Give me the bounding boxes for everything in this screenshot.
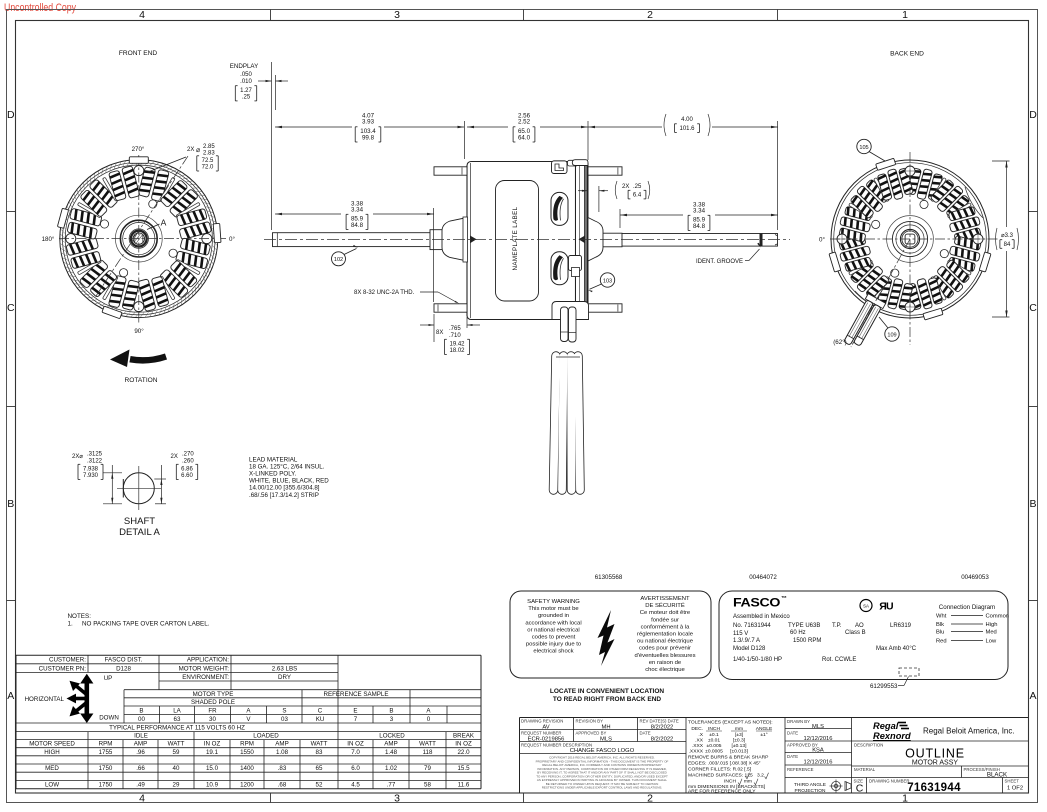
svg-text:270°: 270°	[132, 146, 145, 153]
svg-text:0°: 0°	[229, 236, 235, 243]
svg-text:[±3]: [±3]	[735, 732, 744, 738]
svg-text:grounded in: grounded in	[538, 613, 569, 619]
svg-text:40: 40	[173, 765, 180, 772]
svg-text:SHADED POLE: SHADED POLE	[191, 699, 235, 706]
svg-text:00469053: 00469053	[961, 574, 989, 581]
svg-text:THIRD ANGLE: THIRD ANGLE	[794, 782, 826, 788]
svg-text:Rexnord: Rexnord	[873, 731, 911, 741]
svg-text:1: 1	[902, 9, 908, 21]
svg-text:BREAK: BREAK	[453, 733, 475, 740]
svg-text:±0.005: ±0.005	[707, 743, 722, 749]
svg-text:11.6: 11.6	[458, 782, 470, 789]
svg-text:71631944: 71631944	[907, 782, 961, 794]
svg-text:⌀3.3: ⌀3.3	[1001, 233, 1014, 239]
svg-text:EDGES: .003/.015 [.08/.38] X: EDGES: .003/.015 [.08/.38] X 45°	[688, 761, 761, 767]
svg-text:7.938: 7.938	[83, 467, 99, 473]
svg-text:NAMEPLATE LABEL: NAMEPLATE LABEL	[512, 206, 519, 270]
svg-text:MOTOR SPEED: MOTOR SPEED	[29, 741, 75, 748]
svg-text:IDENT. GROOVE: IDENT. GROOVE	[696, 259, 743, 265]
svg-text:NO PACKING TAPE OVER CARTON LA: NO PACKING TAPE OVER CARTON LABEL.	[82, 621, 210, 628]
svg-text:CUSTOMER:: CUSTOMER:	[49, 657, 86, 664]
svg-text:AMP: AMP	[275, 741, 288, 748]
svg-text:03: 03	[281, 716, 288, 723]
svg-text:.270: .270	[182, 452, 194, 458]
svg-text:12/12/2016: 12/12/2016	[803, 760, 832, 766]
svg-text:S: S	[282, 707, 286, 714]
svg-text:2X: 2X	[171, 454, 178, 460]
svg-text:REFERENCE: REFERENCE	[787, 767, 814, 772]
svg-text:1.48: 1.48	[385, 749, 398, 756]
svg-text:SAFETY WARNING: SAFETY WARNING	[527, 599, 580, 605]
svg-text:109: 109	[887, 333, 896, 339]
svg-text:8X 8-32 UNC-2A THD.: 8X 8-32 UNC-2A THD.	[354, 290, 415, 296]
svg-text:MLS: MLS	[600, 737, 612, 743]
svg-text:6.60: 6.60	[181, 473, 193, 479]
svg-text:52: 52	[316, 782, 323, 789]
svg-text:.X: .X	[698, 732, 703, 738]
svg-text:D128: D128	[116, 665, 131, 672]
svg-text:SA: SA	[863, 604, 869, 609]
svg-text:.68/.56 [17.3/14.2] STRIP: .68/.56 [17.3/14.2] STRIP	[249, 492, 319, 499]
svg-text:choc électrique: choc électrique	[645, 667, 685, 673]
svg-text:WATT: WATT	[311, 741, 328, 748]
svg-text:±0.0005: ±0.0005	[705, 749, 723, 755]
svg-text:4: 4	[139, 9, 145, 21]
svg-text:A: A	[7, 690, 14, 702]
svg-text:61299553: 61299553	[870, 683, 898, 690]
svg-text:X-LINKED POLY.: X-LINKED POLY.	[249, 471, 297, 478]
svg-text:D: D	[7, 109, 15, 121]
svg-text:.66: .66	[136, 765, 145, 772]
svg-text:2X⌀: 2X⌀	[72, 454, 83, 460]
svg-text:84: 84	[1004, 242, 1011, 248]
svg-text:.XX: .XX	[695, 738, 704, 744]
svg-text:TYPICAL PERFORMANCE AT 115 VOL: TYPICAL PERFORMANCE AT 115 VOLTS 60 HZ	[109, 724, 245, 731]
svg-text:3: 3	[394, 9, 400, 21]
svg-text:codes pour prévenir: codes pour prévenir	[639, 646, 691, 652]
svg-text:90°: 90°	[134, 328, 144, 335]
svg-text:1750: 1750	[99, 782, 113, 789]
svg-text:1550: 1550	[240, 749, 254, 756]
svg-text:REQUEST NUMBER DESCRIPTION: REQUEST NUMBER DESCRIPTION	[521, 743, 592, 748]
svg-text:1: 1	[902, 793, 908, 805]
svg-text:Class B: Class B	[845, 630, 866, 636]
svg-text:6.0: 6.0	[351, 765, 360, 772]
svg-text:AVERTISSEMENT: AVERTISSEMENT	[640, 596, 690, 602]
svg-text:E: E	[353, 707, 357, 714]
svg-text:AO: AO	[855, 623, 864, 629]
svg-text:C: C	[7, 302, 15, 314]
svg-text:[±0.013]: [±0.013]	[730, 749, 748, 755]
svg-text:63: 63	[174, 716, 181, 723]
svg-text:Max Amb 40°C: Max Amb 40°C	[876, 646, 917, 652]
svg-text:REV DATE(S) DATE: REV DATE(S) DATE	[640, 719, 679, 724]
svg-text:1.3/.9/.7 A: 1.3/.9/.7 A	[733, 638, 760, 644]
svg-text:Regal Beloit America, Inc.: Regal Beloit America, Inc.	[923, 727, 1015, 736]
svg-text:.710: .710	[449, 333, 461, 339]
svg-text:3: 3	[394, 793, 400, 805]
svg-text:electrical shock: electrical shock	[533, 649, 573, 655]
svg-text:codes to prevent: codes to prevent	[532, 635, 576, 641]
svg-text:15.0: 15.0	[206, 765, 219, 772]
svg-text:Ce moteur doit être: Ce moteur doit être	[640, 610, 691, 616]
svg-text:180°: 180°	[42, 236, 55, 243]
svg-text:00464072: 00464072	[749, 574, 777, 581]
svg-text:TYPE U63B: TYPE U63B	[788, 623, 820, 629]
svg-text:LOW: LOW	[45, 782, 59, 789]
svg-text:.49: .49	[136, 782, 145, 789]
svg-text:MOTOR WEIGHT:: MOTOR WEIGHT:	[179, 665, 230, 672]
svg-text:0°: 0°	[819, 237, 825, 244]
svg-text:LA: LA	[173, 707, 181, 714]
svg-text:ARE FOR REFERENCE ONLY: ARE FOR REFERENCE ONLY	[688, 789, 756, 795]
svg-text:Connection Diagram: Connection Diagram	[939, 604, 995, 611]
svg-text:115 V: 115 V	[733, 631, 748, 637]
svg-text:DESCRIPTION: DESCRIPTION	[854, 743, 883, 748]
svg-text:1.02: 1.02	[385, 765, 398, 772]
svg-text:±1°: ±1°	[760, 732, 767, 738]
svg-text:CUSTOMER PN:: CUSTOMER PN:	[39, 665, 87, 672]
svg-text:1.: 1.	[68, 621, 74, 628]
svg-text:⌀: ⌀	[196, 147, 200, 154]
svg-text:B: B	[7, 498, 14, 510]
svg-text:Red: Red	[936, 639, 947, 645]
svg-text:FASCO DIST.: FASCO DIST.	[105, 657, 143, 664]
svg-text:WATT: WATT	[419, 741, 436, 748]
svg-text:3: 3	[390, 716, 394, 723]
svg-text:TOLERANCES (EXCEPT AS NOTED):: TOLERANCES (EXCEPT AS NOTED):	[688, 720, 773, 726]
svg-text:14.00/12.00 [355.6/304.8]: 14.00/12.00 [355.6/304.8]	[249, 485, 320, 492]
svg-text:REVISION BY: REVISION BY	[576, 719, 604, 724]
svg-text:99.8: 99.8	[362, 135, 375, 142]
svg-text:1.27: 1.27	[240, 88, 252, 94]
svg-text:BACK END: BACK END	[890, 51, 924, 58]
svg-text:8/2/2022: 8/2/2022	[651, 725, 674, 731]
svg-text:Regal: Regal	[873, 721, 899, 731]
svg-text:7: 7	[354, 716, 358, 723]
svg-text:64.0: 64.0	[518, 135, 531, 142]
svg-text:19.1: 19.1	[206, 749, 219, 756]
svg-text:No. 71631944: No. 71631944	[733, 623, 771, 629]
svg-text:6.86: 6.86	[181, 467, 193, 473]
svg-text:1500 RPM: 1500 RPM	[793, 638, 821, 644]
svg-text:1200: 1200	[240, 782, 254, 789]
svg-text:IN OZ: IN OZ	[455, 741, 472, 748]
svg-text:DETAIL A: DETAIL A	[119, 527, 160, 538]
svg-text:ROTATION: ROTATION	[124, 377, 157, 384]
svg-text:Blk: Blk	[936, 622, 944, 628]
svg-text:101.6: 101.6	[679, 126, 695, 132]
svg-text:72.0: 72.0	[202, 165, 214, 171]
svg-text:84.8: 84.8	[693, 223, 706, 230]
svg-text:B: B	[1029, 498, 1036, 510]
svg-text:CHANGE FASCO LOGO: CHANGE FASCO LOGO	[570, 748, 635, 754]
svg-text:Assembled in Mexico: Assembled in Mexico	[733, 614, 790, 620]
svg-text:AMP: AMP	[134, 741, 147, 748]
svg-text:BLACK: BLACK	[987, 772, 1008, 779]
svg-text:61305568: 61305568	[595, 574, 623, 581]
svg-text:3.2: 3.2	[757, 773, 764, 779]
svg-text:.3122: .3122	[87, 459, 103, 465]
svg-text:ENDPLAY: ENDPLAY	[230, 63, 258, 70]
svg-text:FRONT END: FRONT END	[119, 50, 158, 57]
svg-text:possible injury due to: possible injury due to	[526, 642, 582, 648]
svg-text:D: D	[1029, 109, 1037, 121]
svg-text:MLS: MLS	[812, 724, 824, 730]
svg-text:C: C	[318, 707, 323, 714]
svg-text:INCH: INCH	[724, 779, 736, 785]
svg-text:mm: mm	[744, 780, 752, 785]
svg-text:3.34: 3.34	[351, 207, 364, 214]
svg-text:84.8: 84.8	[351, 222, 364, 229]
svg-text:T.P.: T.P.	[832, 623, 842, 629]
svg-text:High: High	[986, 622, 998, 628]
svg-text:2.85: 2.85	[203, 144, 215, 150]
svg-text:Low: Low	[986, 639, 997, 645]
svg-text:AMP: AMP	[384, 741, 397, 748]
svg-text:This motor must be: This motor must be	[528, 606, 579, 612]
svg-text:fondée sur: fondée sur	[651, 617, 679, 623]
svg-text:WHITE, BLUE, BLACK, RED: WHITE, BLUE, BLACK, RED	[249, 478, 329, 485]
svg-text:18 GA. 125°C, 2/64 INSUL.: 18 GA. 125°C, 2/64 INSUL.	[249, 464, 325, 471]
svg-text:.010: .010	[240, 79, 252, 85]
svg-text:1/40-1/50-1/80 HP: 1/40-1/50-1/80 HP	[733, 657, 782, 663]
svg-text:Rot. CCWLE: Rot. CCWLE	[822, 657, 856, 663]
svg-text:.3125: .3125	[87, 452, 103, 458]
svg-text:7.0: 7.0	[351, 749, 360, 756]
svg-text:1 OF2: 1 OF2	[1007, 786, 1023, 792]
svg-text:.260: .260	[182, 459, 194, 465]
svg-text:58: 58	[424, 782, 431, 789]
svg-text:IDLE: IDLE	[134, 733, 148, 740]
svg-text:Wht: Wht	[936, 614, 947, 620]
svg-text:UP: UP	[104, 675, 113, 682]
svg-text:±0.1: ±0.1	[709, 732, 719, 738]
svg-text:Med: Med	[986, 630, 997, 636]
svg-text:DRAWING REVISION: DRAWING REVISION	[521, 719, 563, 724]
svg-text:B: B	[389, 707, 393, 714]
svg-text:conformément à la: conformément à la	[641, 624, 691, 630]
svg-text:APPLICATION:: APPLICATION:	[187, 657, 229, 664]
svg-text:.83: .83	[278, 765, 287, 772]
svg-text:4: 4	[139, 793, 145, 805]
svg-text:DE SÉCURITÉ: DE SÉCURITÉ	[645, 602, 685, 609]
svg-text:7.930: 7.930	[83, 473, 99, 479]
svg-text:A: A	[1029, 690, 1036, 702]
svg-text:103: 103	[603, 279, 612, 285]
svg-text:8/2/2022: 8/2/2022	[651, 737, 674, 743]
svg-text:C: C	[1029, 302, 1037, 314]
svg-text:83: 83	[316, 749, 323, 756]
svg-text:MACHINED SURFACES: 125: MACHINED SURFACES: 125	[688, 773, 753, 779]
svg-text:65: 65	[316, 765, 323, 772]
svg-text:LOCATE IN CONVENIENT LOCATION: LOCATE IN CONVENIENT LOCATION	[550, 688, 665, 695]
svg-text:.77: .77	[387, 782, 396, 789]
svg-text:d'éventuelles blessures: d'éventuelles blessures	[634, 653, 695, 659]
svg-text:6.4: 6.4	[633, 193, 642, 199]
svg-text:2.63 LBS: 2.63 LBS	[272, 665, 297, 672]
svg-text:8X: 8X	[436, 330, 443, 336]
svg-text:22.0: 22.0	[457, 749, 470, 756]
svg-text:WATT: WATT	[168, 741, 185, 748]
svg-text:ЯU: ЯU	[879, 601, 893, 613]
svg-text:IN OZ: IN OZ	[347, 741, 364, 748]
svg-text:APPROVED BY: APPROVED BY	[576, 731, 607, 736]
svg-text:4.5: 4.5	[351, 782, 360, 789]
svg-text:.68: .68	[278, 782, 287, 789]
svg-text:accordance with local: accordance with local	[525, 620, 581, 626]
svg-text:105: 105	[859, 145, 868, 151]
svg-text:29: 29	[173, 782, 180, 789]
svg-text:réglementation locale: réglementation locale	[637, 632, 694, 638]
svg-text:19.42: 19.42	[449, 342, 465, 348]
svg-text:[±0.13]: [±0.13]	[732, 743, 748, 749]
svg-text:79: 79	[424, 765, 431, 772]
svg-text:REQUEST NUMBER: REQUEST NUMBER	[521, 731, 562, 736]
svg-text:HIGH: HIGH	[44, 749, 59, 756]
svg-text:DATE: DATE	[787, 754, 798, 759]
svg-text:DRAWING NUMBER: DRAWING NUMBER	[869, 779, 909, 784]
svg-text:RPM: RPM	[99, 741, 113, 748]
svg-text:.25: .25	[633, 184, 642, 190]
svg-text:.96: .96	[136, 749, 145, 756]
svg-text:10.9: 10.9	[206, 782, 219, 789]
svg-text:2.83: 2.83	[203, 151, 215, 157]
svg-text:DATE: DATE	[640, 731, 651, 736]
svg-text:NOTES:: NOTES:	[68, 613, 92, 620]
svg-text:1400: 1400	[240, 765, 254, 772]
svg-text:2: 2	[647, 793, 653, 805]
svg-text:C: C	[856, 783, 864, 795]
svg-text:MOTOR TYPE: MOTOR TYPE	[193, 691, 234, 698]
svg-text:Common: Common	[986, 614, 1010, 620]
svg-text:LEAD MATERIAL: LEAD MATERIAL	[249, 457, 298, 464]
svg-text:™: ™	[781, 595, 787, 602]
svg-text:1.08: 1.08	[276, 749, 289, 756]
svg-text:Model D128: Model D128	[733, 646, 766, 652]
svg-text:2.52: 2.52	[518, 119, 531, 126]
svg-text:DRAWN BY: DRAWN BY	[787, 719, 810, 724]
svg-text:72.5: 72.5	[202, 158, 214, 164]
svg-text:30: 30	[209, 716, 216, 723]
svg-text:3.93: 3.93	[362, 119, 375, 126]
svg-text:B: B	[139, 707, 143, 714]
svg-text:LOADED: LOADED	[253, 733, 279, 740]
svg-text:KSA: KSA	[812, 748, 824, 754]
svg-text:TO READ RIGHT FROM BACK END: TO READ RIGHT FROM BACK END	[553, 696, 662, 703]
svg-text:±0.01: ±0.01	[708, 738, 720, 744]
svg-text:12/12/2016: 12/12/2016	[803, 736, 832, 742]
svg-text:Blu: Blu	[936, 630, 944, 636]
svg-text:OUTLINE: OUTLINE	[905, 747, 965, 761]
svg-text:1750: 1750	[99, 765, 113, 772]
svg-text:FASCO: FASCO	[733, 596, 780, 610]
svg-text:SHAFT: SHAFT	[124, 516, 155, 527]
svg-text:3.34: 3.34	[693, 208, 706, 215]
svg-text:[±0.3]: [±0.3]	[733, 738, 746, 744]
svg-text:or national electrical: or national electrical	[527, 627, 579, 633]
svg-text:00: 00	[138, 716, 145, 723]
svg-text:.765: .765	[449, 326, 461, 332]
svg-text:LOCKED: LOCKED	[379, 733, 405, 740]
svg-text:Uncontrolled Copy: Uncontrolled Copy	[4, 2, 76, 14]
svg-text:DOWN: DOWN	[99, 715, 119, 722]
svg-text:CORNER FILLETS: R.02 [.5]: CORNER FILLETS: R.02 [.5]	[688, 767, 752, 773]
svg-text:REMOVE BURRS & BREAK SHARP: REMOVE BURRS & BREAK SHARP	[688, 755, 768, 761]
svg-text:.XXXX: .XXXX	[689, 749, 704, 755]
svg-text:15.5: 15.5	[457, 765, 470, 772]
svg-text:SHEET: SHEET	[1005, 779, 1020, 784]
svg-text:PROJECTION: PROJECTION	[795, 788, 826, 794]
svg-text:2X: 2X	[622, 184, 629, 190]
svg-text:RESTRICTIONS UNDER APPLICABLE: RESTRICTIONS UNDER APPLICABLE EXPORT CON…	[542, 786, 663, 790]
svg-text:en raison de: en raison de	[649, 660, 682, 666]
svg-text:HORIZONTAL: HORIZONTAL	[25, 696, 65, 703]
svg-text:102: 102	[334, 257, 343, 263]
svg-text:DEC.: DEC.	[691, 726, 703, 732]
svg-text:MATERIAL: MATERIAL	[854, 767, 876, 772]
svg-text:ENVIRONMENT:: ENVIRONMENT:	[182, 674, 229, 681]
svg-text:.25: .25	[242, 95, 251, 101]
svg-text:.050: .050	[240, 72, 252, 78]
svg-text:2X: 2X	[187, 147, 194, 153]
svg-text:DRY: DRY	[278, 674, 291, 681]
svg-text:1755: 1755	[99, 749, 113, 756]
svg-text:MED: MED	[45, 765, 59, 772]
svg-text:118: 118	[423, 749, 433, 756]
svg-text:4.00: 4.00	[681, 117, 693, 123]
svg-text:60 Hz: 60 Hz	[790, 630, 806, 636]
svg-text:ou national électrique: ou national électrique	[637, 639, 694, 645]
svg-text:(62°): (62°)	[833, 339, 846, 346]
svg-text:59: 59	[173, 749, 180, 756]
svg-text:FR: FR	[208, 707, 217, 714]
svg-text:KU: KU	[316, 716, 325, 723]
svg-text:RPM: RPM	[240, 741, 254, 748]
svg-text:IN OZ: IN OZ	[204, 741, 221, 748]
svg-text:0: 0	[427, 716, 431, 723]
svg-text:DATE: DATE	[787, 731, 798, 736]
svg-text:2: 2	[647, 9, 653, 21]
svg-text:MOTOR ASSY: MOTOR ASSY	[912, 760, 958, 767]
svg-text:.XXX: .XXX	[692, 743, 704, 749]
svg-text:REFERENCE SAMPLE: REFERENCE SAMPLE	[324, 691, 389, 698]
svg-text:18.02: 18.02	[449, 348, 465, 354]
svg-text:LR6319: LR6319	[890, 623, 912, 629]
svg-text:A: A	[161, 218, 167, 228]
